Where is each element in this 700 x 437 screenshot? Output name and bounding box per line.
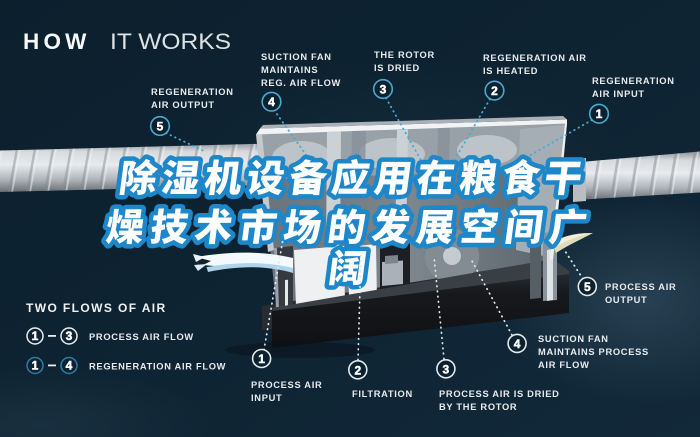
svg-text:4: 4 bbox=[514, 337, 521, 351]
svg-text:FILTRATION: FILTRATION bbox=[352, 389, 413, 399]
svg-text:1: 1 bbox=[32, 329, 39, 343]
svg-text:SUCTION FAN: SUCTION FAN bbox=[261, 52, 332, 62]
svg-text:5: 5 bbox=[157, 120, 164, 134]
svg-text:AIR OUTPUT: AIR OUTPUT bbox=[151, 100, 215, 110]
svg-text:MAINTAINS: MAINTAINS bbox=[261, 65, 318, 75]
svg-text:4: 4 bbox=[268, 95, 275, 109]
svg-text:IT WORKS: IT WORKS bbox=[110, 29, 231, 54]
svg-text:BY THE ROTOR: BY THE ROTOR bbox=[439, 402, 517, 412]
svg-text:3: 3 bbox=[66, 329, 73, 343]
svg-text:AIR FLOW: AIR FLOW bbox=[538, 360, 590, 370]
svg-text:2: 2 bbox=[354, 363, 361, 377]
svg-text:PROCESS AIR IS DRIED: PROCESS AIR IS DRIED bbox=[439, 389, 560, 399]
svg-text:SUCTION FAN: SUCTION FAN bbox=[538, 334, 609, 344]
svg-text:THE ROTOR: THE ROTOR bbox=[374, 50, 435, 60]
svg-text:3: 3 bbox=[443, 362, 450, 376]
svg-text:1: 1 bbox=[258, 352, 265, 366]
svg-text:IS HEATED: IS HEATED bbox=[483, 66, 538, 76]
svg-text:REGENERATION AIR: REGENERATION AIR bbox=[483, 53, 587, 63]
svg-text:1: 1 bbox=[596, 107, 603, 121]
svg-text:5: 5 bbox=[584, 280, 591, 294]
svg-text:REGENERATION: REGENERATION bbox=[151, 87, 234, 97]
svg-text:REGENERATION AIR FLOW: REGENERATION AIR FLOW bbox=[89, 362, 226, 372]
svg-text:4: 4 bbox=[66, 359, 73, 373]
svg-text:INPUT: INPUT bbox=[251, 393, 282, 403]
svg-text:AIR INPUT: AIR INPUT bbox=[592, 89, 645, 99]
svg-text:HOW: HOW bbox=[23, 29, 91, 54]
svg-text:MAINTAINS PROCESS: MAINTAINS PROCESS bbox=[538, 347, 649, 357]
svg-text:PROCESS AIR: PROCESS AIR bbox=[605, 282, 676, 292]
svg-text:IS DRIED: IS DRIED bbox=[374, 63, 420, 73]
svg-text:PROCESS AIR: PROCESS AIR bbox=[251, 380, 322, 390]
svg-text:3: 3 bbox=[380, 83, 387, 97]
svg-text:2: 2 bbox=[491, 84, 498, 98]
svg-text:REGENERATION: REGENERATION bbox=[592, 76, 675, 86]
svg-text:REG. AIR FLOW: REG. AIR FLOW bbox=[261, 78, 341, 88]
svg-text:PROCESS AIR FLOW: PROCESS AIR FLOW bbox=[89, 332, 194, 342]
svg-text:1: 1 bbox=[32, 359, 39, 373]
svg-text:OUTPUT: OUTPUT bbox=[605, 295, 647, 305]
svg-text:TWO FLOWS OF AIR: TWO FLOWS OF AIR bbox=[26, 301, 167, 315]
